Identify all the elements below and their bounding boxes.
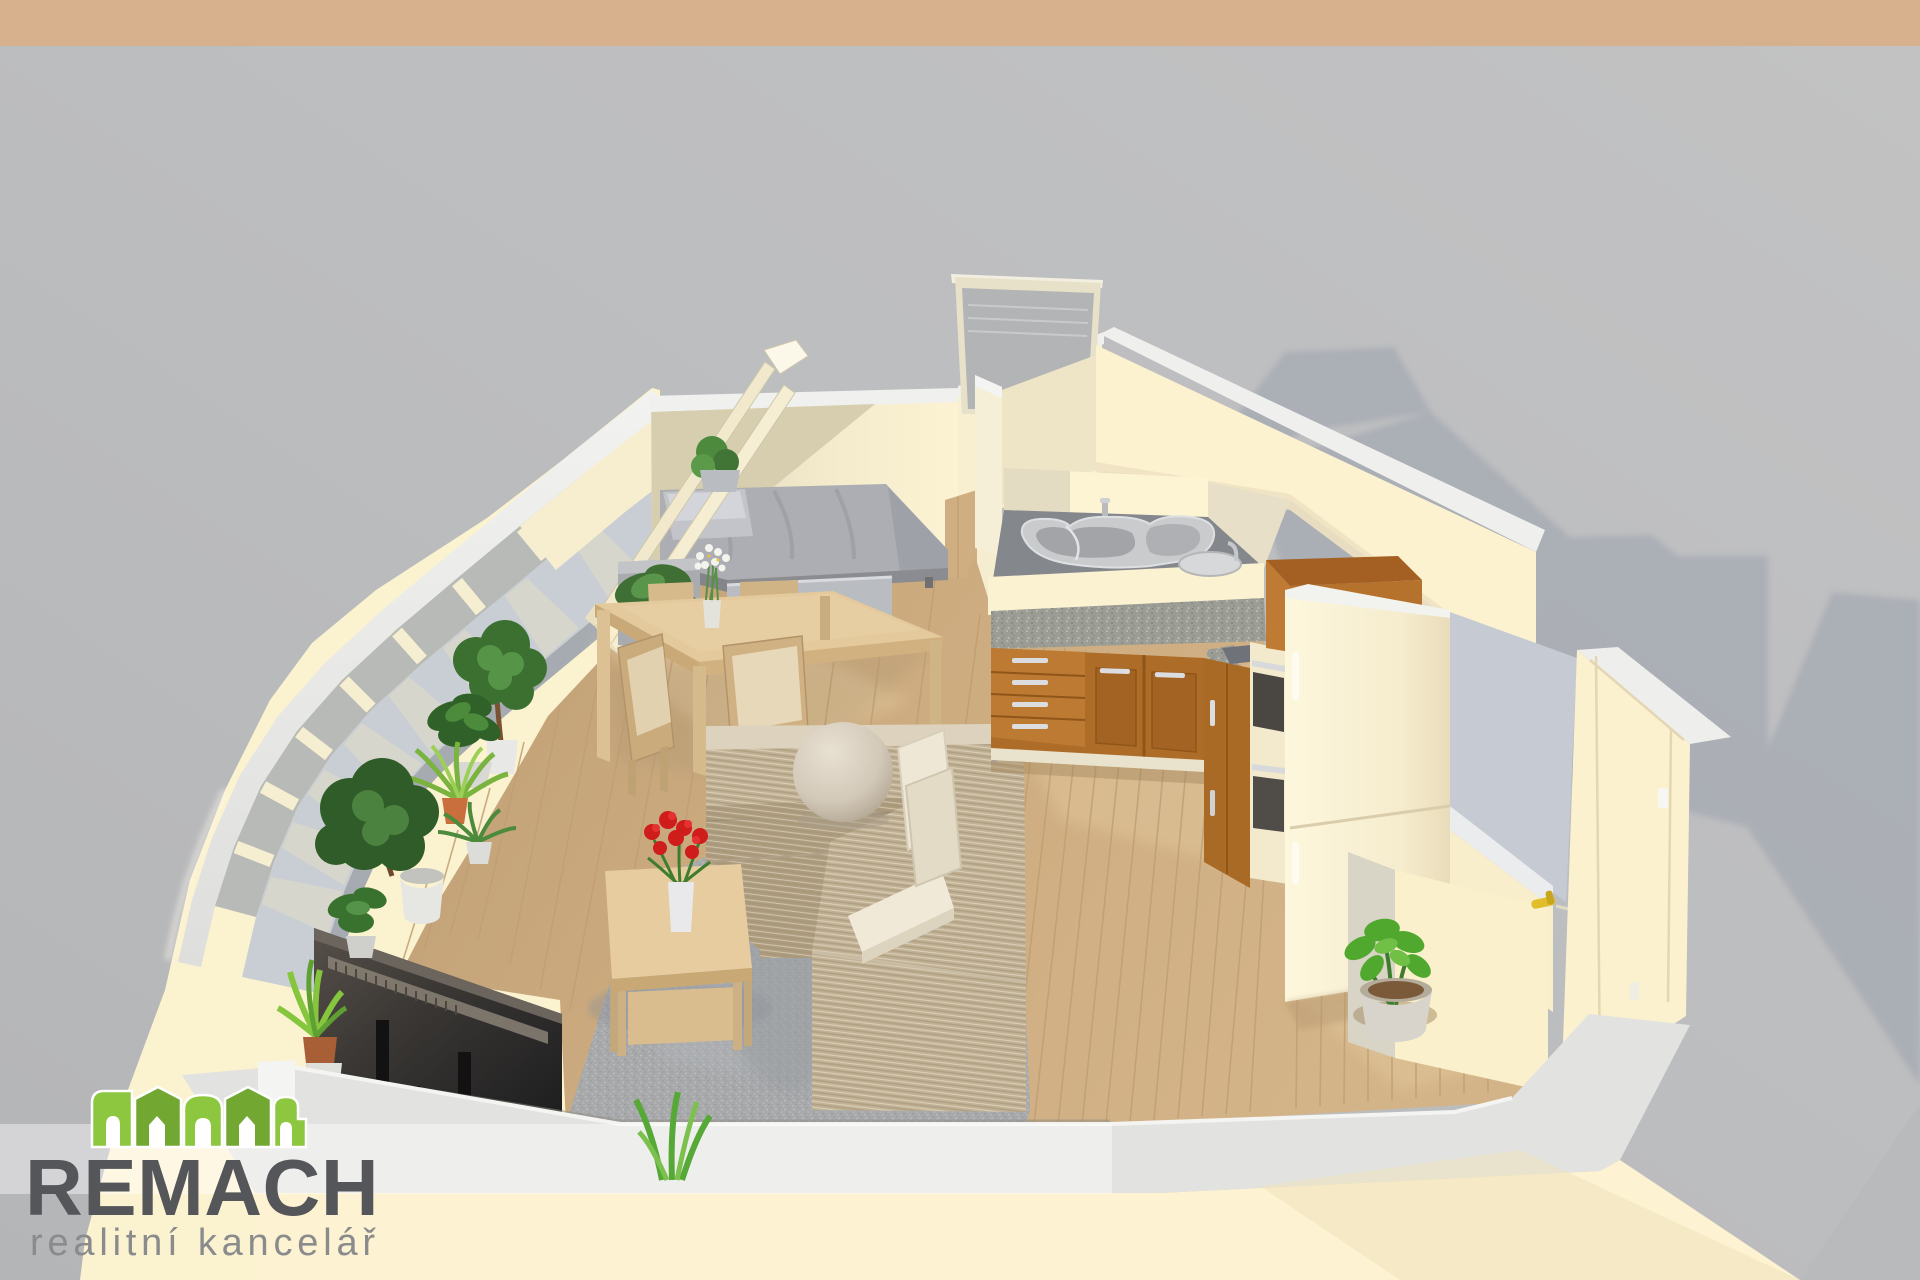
svg-text:REMACH: REMACH <box>25 1143 379 1232</box>
svg-text:realitní kancelář: realitní kancelář <box>30 1222 380 1264</box>
